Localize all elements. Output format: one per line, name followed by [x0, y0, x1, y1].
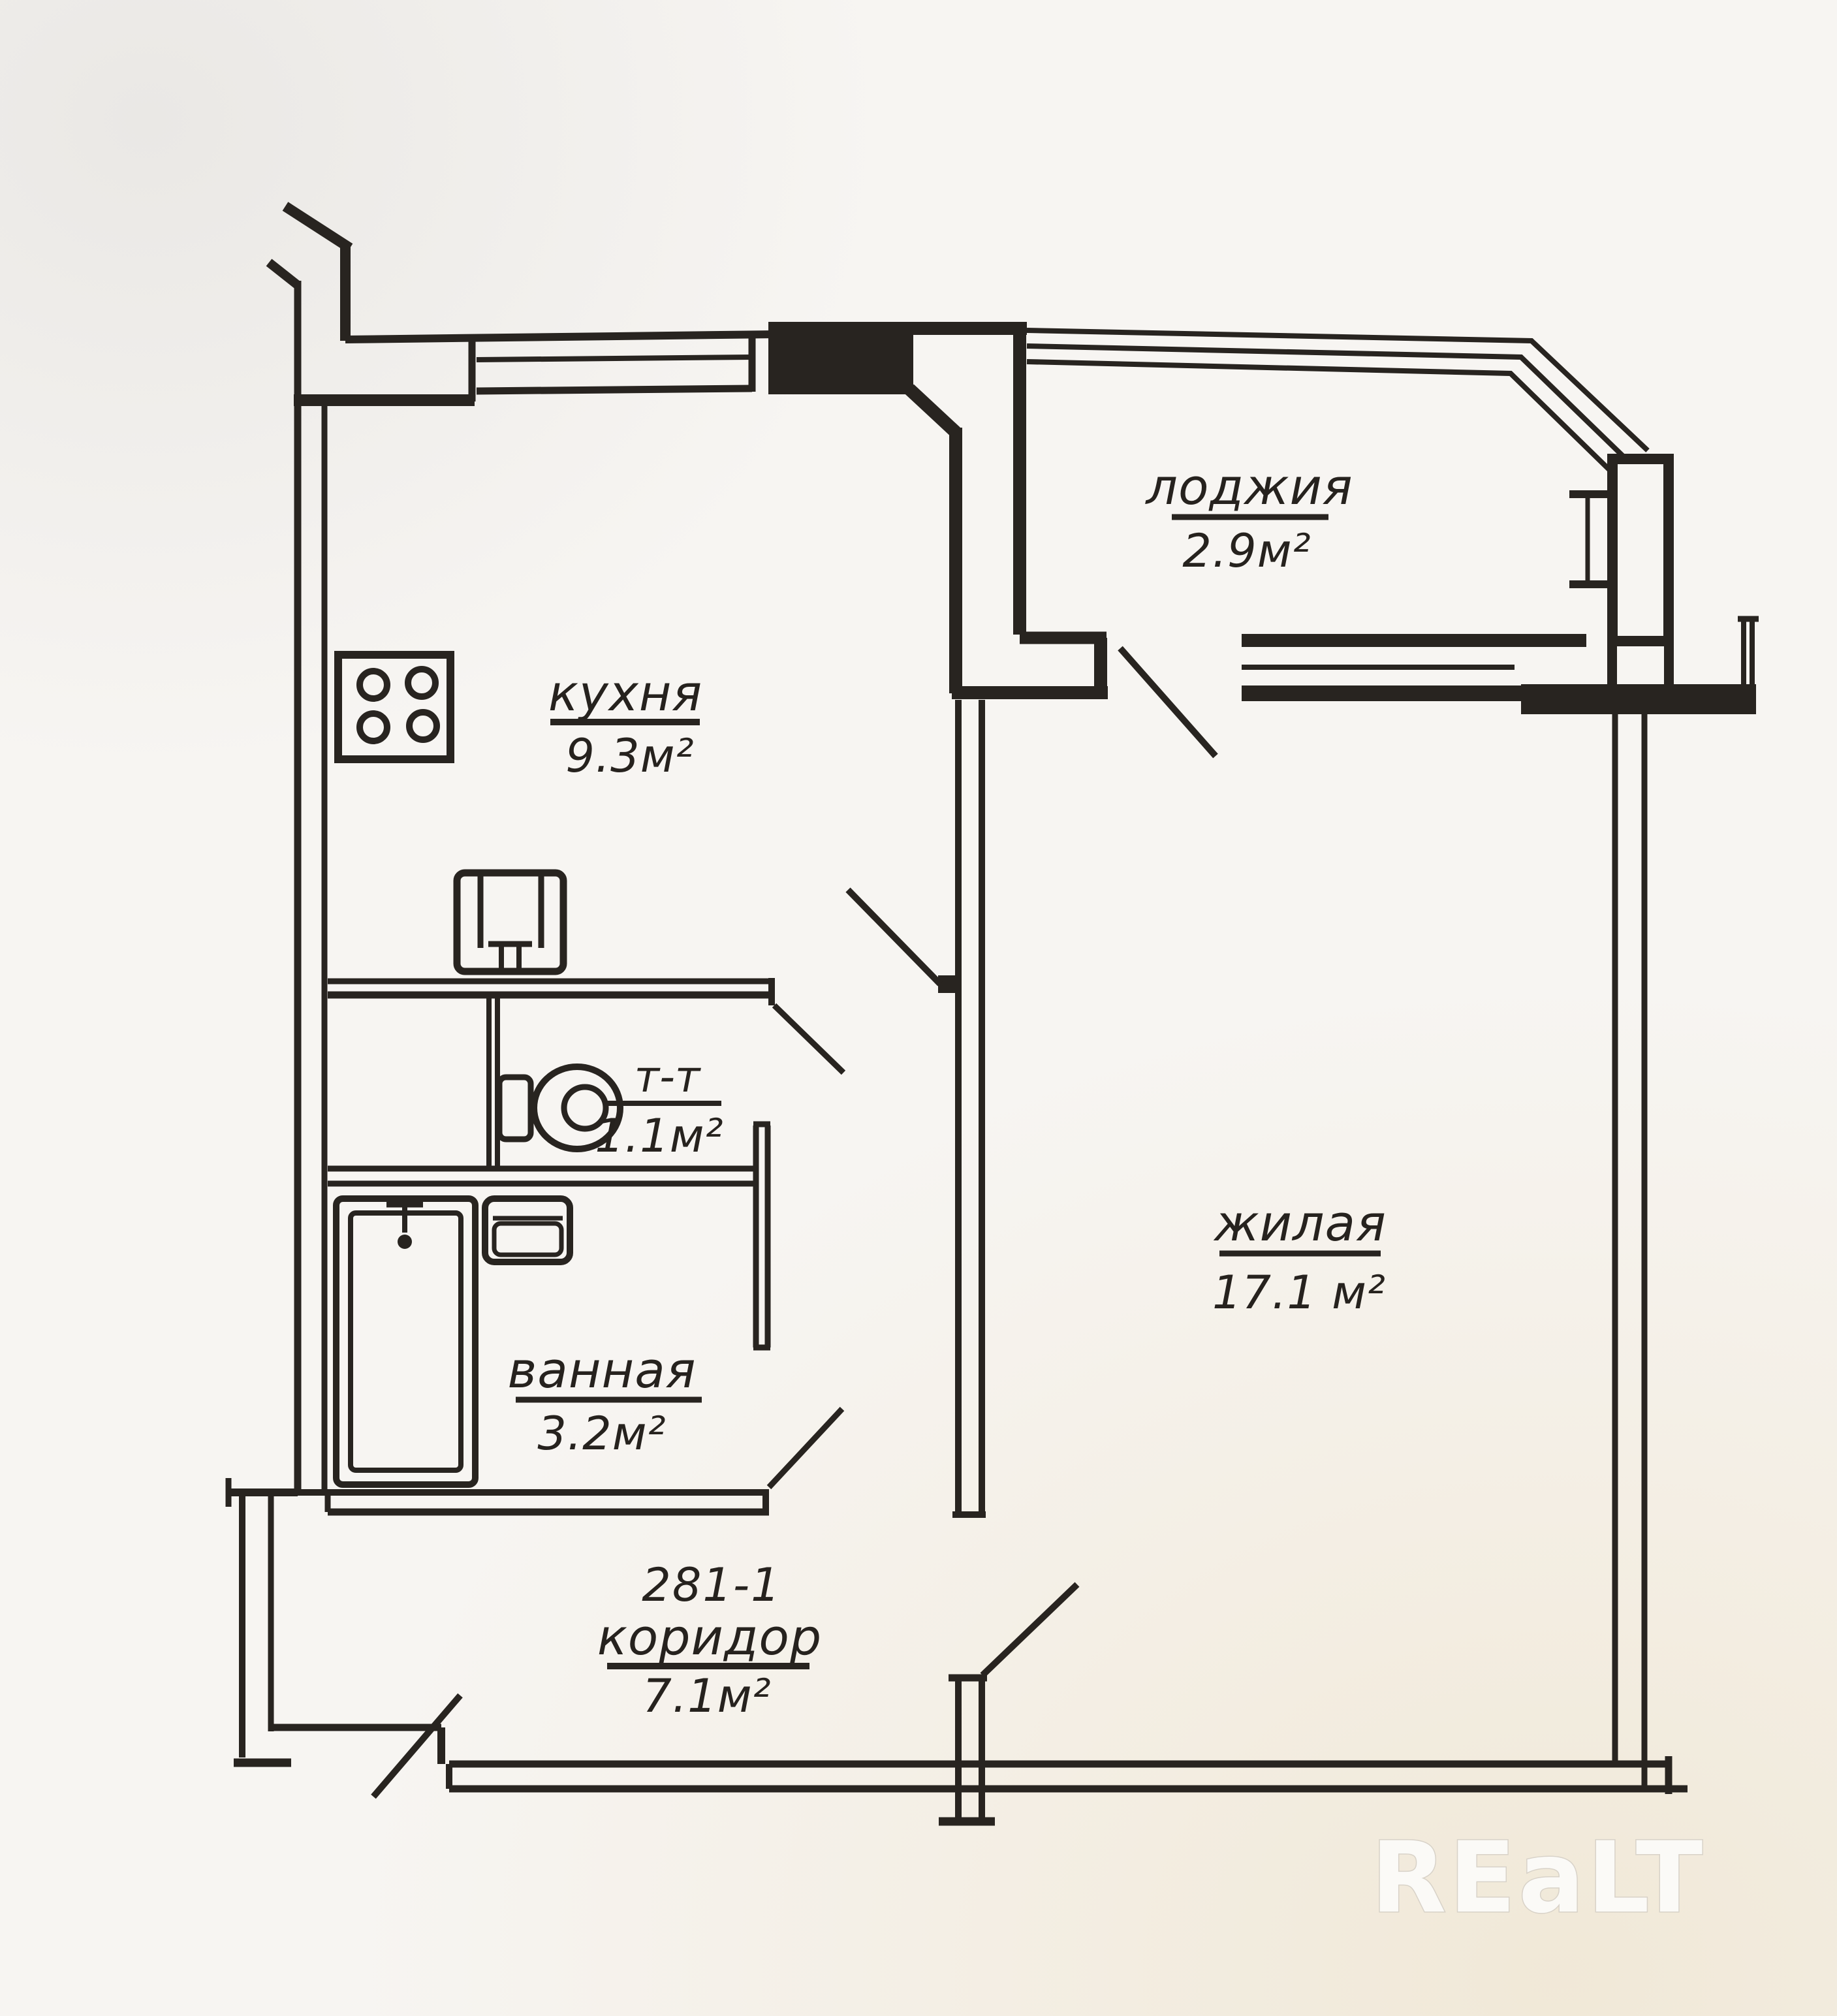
- north-wall-block: [768, 322, 1108, 697]
- stove-icon: [338, 655, 450, 759]
- toilet-name: т-т: [635, 1052, 702, 1102]
- living-area: 17.1 м²: [1212, 1266, 1386, 1319]
- living-room-west-wall: [938, 700, 995, 1825]
- sanitary-walls: [298, 978, 774, 1515]
- loggia-name: лоджия: [1144, 458, 1353, 516]
- room-label-toilet: т-т 1.1м²: [595, 1052, 723, 1163]
- toilet-door-swing: [774, 1005, 843, 1073]
- bathroom-name: ванная: [507, 1341, 696, 1399]
- toilet-area: 1.1м²: [595, 1109, 723, 1163]
- south-wall: [449, 1764, 1688, 1789]
- living-room-door-swing: [982, 1584, 1077, 1675]
- kitchen-window: [345, 332, 777, 402]
- room-label-loggia: лоджия 2.9м²: [1144, 458, 1353, 578]
- kitchen-area: 9.3м²: [565, 729, 694, 783]
- kitchen-door-swing: [848, 890, 940, 984]
- loggia-south-wall: [1242, 619, 1759, 714]
- photo-of-floor-plan: лоджия 2.9м² кухня 9.3м² т-т 1.1м² ванна…: [0, 0, 1837, 2016]
- vent-shaft-walls: [269, 206, 350, 341]
- loggia-area: 2.9м²: [1182, 524, 1311, 578]
- realt-watermark: REaLT: [1371, 1821, 1705, 1935]
- room-label-corridor: 281-1 коридор 7.1м²: [597, 1558, 822, 1723]
- bathroom-door-swing: [769, 1409, 842, 1487]
- loggia-window: [1027, 330, 1648, 477]
- corridor-area: 7.1м²: [642, 1669, 771, 1723]
- bathtub-icon: [336, 1199, 475, 1485]
- room-label-kitchen: кухня 9.3м²: [548, 664, 702, 783]
- entrance-walls: [228, 1478, 441, 1764]
- bathroom-area: 3.2м²: [537, 1407, 666, 1460]
- washbasin-icon: [485, 1199, 570, 1262]
- left-exterior-wall: [294, 281, 475, 1492]
- walls: [228, 206, 1759, 1825]
- kitchen-sink-icon: [457, 873, 563, 971]
- room-label-bathroom: ванная 3.2м²: [507, 1341, 702, 1460]
- kitchen-name: кухня: [548, 664, 702, 722]
- room-label-living: жилая 17.1 м²: [1212, 1194, 1387, 1319]
- corridor-name: коридор: [597, 1608, 822, 1666]
- living-name: жилая: [1213, 1194, 1387, 1252]
- floor-plan-drawing: лоджия 2.9м² кухня 9.3м² т-т 1.1м² ванна…: [0, 0, 1837, 2016]
- unit-number: 281-1: [642, 1558, 781, 1612]
- room-labels: лоджия 2.9м² кухня 9.3м² т-т 1.1м² ванна…: [507, 458, 1386, 1723]
- loggia-right-pier: [1569, 459, 1669, 641]
- loggia-door-swing: [1120, 648, 1216, 756]
- right-exterior-wall: [1615, 714, 1669, 1794]
